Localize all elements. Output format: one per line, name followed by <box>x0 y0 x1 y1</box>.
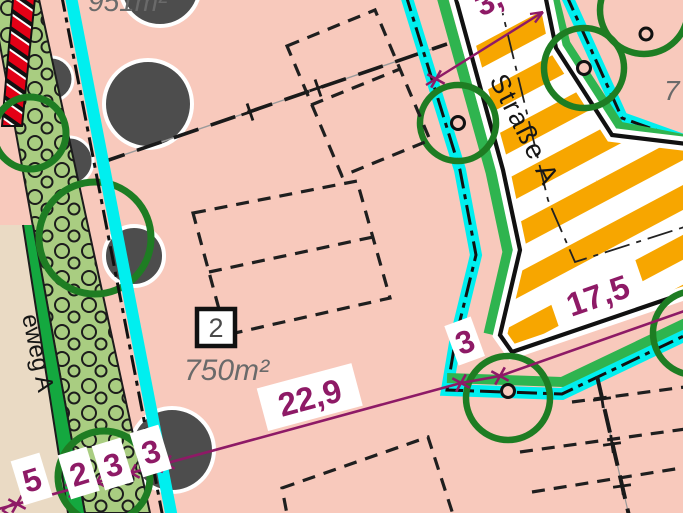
site-plan-viewport: eweg A Straße A <box>0 0 683 513</box>
parcel-area-label-top: 951m² <box>88 0 169 17</box>
parcel-area-label: 750m² <box>184 354 270 387</box>
parcel-number-box: 2 <box>197 309 235 346</box>
parcel-area-label-right: 7 <box>664 75 681 106</box>
parcel-number: 2 <box>208 313 223 343</box>
tree-trunk-dot-icon <box>578 62 591 75</box>
tree-trunk-dot-icon <box>640 28 652 40</box>
tree-trunk-dot-icon <box>452 117 465 130</box>
tree-trunk-dot-icon <box>502 385 515 398</box>
site-plan-map[interactable]: eweg A Straße A <box>0 0 683 513</box>
